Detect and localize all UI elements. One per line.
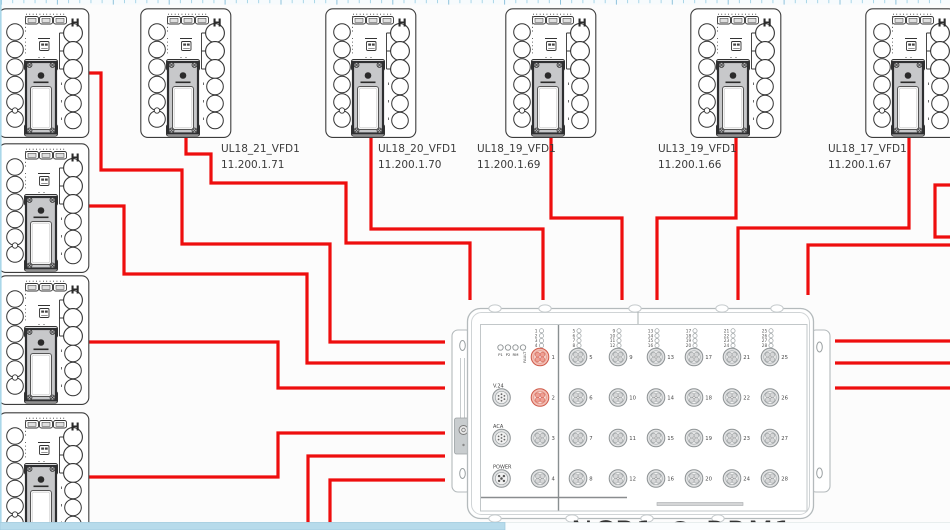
device-name: UL18_20_VFD1 (378, 143, 457, 155)
aux-port-label: POWER (493, 465, 512, 471)
switch-port-9[interactable] (609, 348, 627, 366)
port-led (693, 339, 697, 343)
clamp-dot (462, 444, 464, 446)
switch-port-17[interactable] (685, 348, 703, 366)
port-number: 11 (629, 436, 636, 442)
port-number: 9 (629, 355, 632, 361)
port-number: 12 (629, 477, 636, 483)
port-led (693, 329, 697, 333)
switch-port-16[interactable] (647, 470, 665, 488)
switch-port-23[interactable] (723, 429, 741, 447)
switch-port-1[interactable] (531, 348, 549, 366)
switch-port-19[interactable] (685, 429, 703, 447)
aux-port-aca[interactable] (493, 429, 511, 447)
port-led (769, 339, 773, 343)
port-led (731, 334, 735, 338)
switch-port-8[interactable] (569, 470, 587, 488)
status-led-fault (520, 345, 525, 350)
port-led (617, 334, 621, 338)
device-ip: 11.200.1.71 (221, 159, 284, 171)
port-led-number: 12 (610, 343, 616, 349)
port-led-number: 28 (762, 343, 768, 349)
case-tab (489, 515, 501, 522)
diagram-scene[interactable]: H (0, 0, 950, 530)
switch-port-13[interactable] (647, 348, 665, 366)
ruler-left-edge (0, 0, 2, 530)
panel-bar (657, 503, 743, 506)
port-number: 17 (705, 355, 712, 361)
status-led-label: P2 (506, 352, 511, 357)
port-led (539, 343, 543, 347)
screw-hole (817, 468, 823, 478)
port-led (577, 329, 581, 333)
status-led-label: RM (512, 352, 518, 357)
screw-hole (460, 341, 466, 351)
case-tab (489, 305, 501, 312)
port-led (731, 329, 735, 333)
port-led (769, 334, 773, 338)
port-led (577, 339, 581, 343)
aux-port-label: V.24 (493, 384, 504, 390)
port-led (655, 329, 659, 333)
port-number: 13 (667, 355, 674, 361)
screw-hole (817, 342, 823, 352)
status-led-p1 (498, 345, 503, 350)
port-led (577, 343, 581, 347)
switch-port-7[interactable] (569, 429, 587, 447)
port-led (617, 329, 621, 333)
port-number: 2 (552, 396, 555, 402)
device-top-amp-2[interactable] (326, 9, 416, 138)
case-tab (716, 305, 728, 312)
port-number: 21 (743, 355, 750, 361)
ruler-top (0, 0, 950, 5)
port-number: 3 (552, 436, 555, 442)
device-name: UL18_17_VFD1 (828, 143, 907, 155)
switch-port-27[interactable] (761, 429, 779, 447)
port-led-number: 16 (648, 343, 654, 349)
status-led-p2 (505, 345, 510, 350)
switch-port-12[interactable] (609, 470, 627, 488)
port-number: 7 (589, 436, 592, 442)
port-number: 14 (667, 396, 674, 402)
switch-port-15[interactable] (647, 429, 665, 447)
design-canvas[interactable]: H (0, 0, 950, 530)
device-top-amp-5[interactable] (866, 9, 950, 138)
switch-port-26[interactable] (761, 389, 779, 407)
port-led (617, 343, 621, 347)
device-rack-amp-3[interactable] (0, 276, 89, 405)
port-led (577, 334, 581, 338)
status-led-label-fault: FAULT (522, 351, 527, 363)
device-name: UL18_21_VFD1 (221, 143, 300, 155)
network-switch[interactable]: P1P2RMFAULTV.24ACAPOWER12341234567856789… (452, 305, 830, 522)
switch-port-21[interactable] (723, 348, 741, 366)
device-ip: 11.200.1.67 (828, 159, 891, 171)
port-led (655, 334, 659, 338)
aux-port-v24[interactable] (493, 389, 511, 407)
switch-port-5[interactable] (569, 348, 587, 366)
switch-port-18[interactable] (685, 389, 703, 407)
port-number: 28 (781, 477, 788, 483)
port-led (655, 343, 659, 347)
port-number: 22 (743, 396, 750, 402)
port-led (693, 343, 697, 347)
port-led-number: 20 (686, 343, 692, 349)
switch-port-22[interactable] (723, 389, 741, 407)
port-led (539, 334, 543, 338)
switch-port-10[interactable] (609, 389, 627, 407)
device-rack-amp-4[interactable] (0, 413, 89, 530)
port-number: 26 (781, 396, 788, 402)
port-number: 1 (552, 355, 555, 361)
switch-port-6[interactable] (569, 389, 587, 407)
device-ip: 11.200.1.70 (378, 159, 441, 171)
port-number: 23 (743, 436, 750, 442)
device-ip: 11.200.1.66 (658, 159, 722, 171)
case-tab (771, 305, 783, 312)
port-number: 16 (667, 477, 674, 483)
status-led-rm (513, 345, 518, 350)
port-number: 18 (705, 396, 712, 402)
port-number: 25 (781, 355, 788, 361)
device-name: UL18_19_VFD1 (477, 143, 556, 155)
device-top-amp-1[interactable] (141, 9, 231, 138)
switch-port-3[interactable] (531, 429, 549, 447)
port-number: 24 (743, 477, 750, 483)
port-number: 10 (629, 396, 636, 402)
switch-port-14[interactable] (647, 389, 665, 407)
device-top-amp-3[interactable] (506, 9, 596, 138)
case-tab (629, 305, 641, 312)
port-led (693, 334, 697, 338)
switch-port-28[interactable] (761, 470, 779, 488)
port-led-number: 24 (724, 343, 730, 349)
device-ip: 11.200.1.69 (477, 159, 540, 171)
device-rack-amp-2[interactable] (0, 144, 89, 273)
switch-port-24[interactable] (723, 470, 741, 488)
port-led (539, 329, 543, 333)
switch-port-4[interactable] (531, 470, 549, 488)
aux-port-label: ACA (493, 424, 504, 430)
port-number: 27 (781, 436, 788, 442)
device-name: UL13_19_VFD1 (658, 143, 737, 155)
port-led (617, 339, 621, 343)
port-led (655, 339, 659, 343)
horizontal-scrollbar-thumb[interactable] (0, 523, 505, 530)
port-number: 15 (667, 436, 674, 442)
clamp-screw (459, 426, 468, 435)
device-top-amp-4[interactable] (691, 9, 781, 138)
switch-port-25[interactable] (761, 348, 779, 366)
port-led (769, 343, 773, 347)
device-rack-amp-1[interactable] (0, 9, 89, 138)
switch-port-20[interactable] (685, 470, 703, 488)
switch-port-11[interactable] (609, 429, 627, 447)
aux-port-power[interactable] (493, 470, 511, 488)
port-number: 19 (705, 436, 712, 442)
port-number: 20 (705, 477, 712, 483)
port-led (731, 343, 735, 347)
screw-hole (460, 469, 466, 479)
status-led-label: P1 (498, 352, 503, 357)
port-led (539, 339, 543, 343)
case-tab (539, 305, 551, 312)
port-number: 5 (589, 355, 592, 361)
port-led (731, 339, 735, 343)
port-led (769, 329, 773, 333)
switch-port-2[interactable] (531, 389, 549, 407)
